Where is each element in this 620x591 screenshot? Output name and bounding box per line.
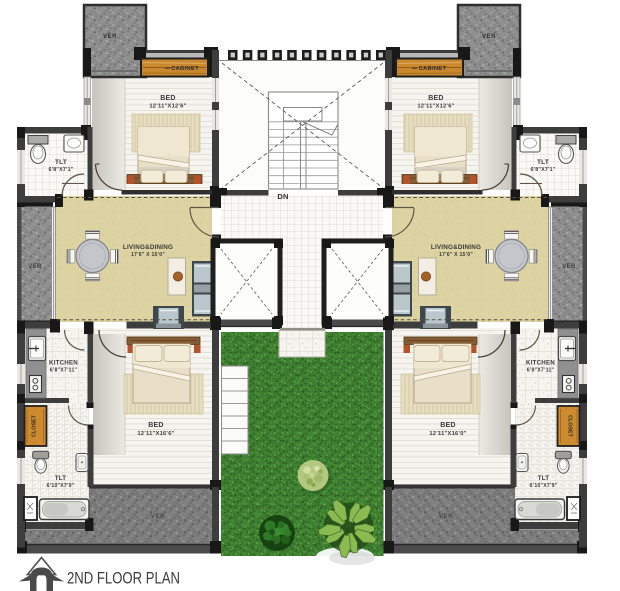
svg-text:BED: BED [440,422,455,429]
svg-text:CABINET: CABINET [171,66,199,72]
svg-text:17’6" X 15’0": 17’6" X 15’0" [131,252,165,258]
svg-text:TLT: TLT [537,159,549,166]
svg-text:CLOSET: CLOSET [32,414,38,437]
svg-text:TLT: TLT [538,475,549,482]
svg-text:TLT: TLT [55,475,66,482]
svg-text:KITCHEN: KITCHEN [49,360,78,367]
svg-text:6’8"X7’1": 6’8"X7’1" [48,167,73,173]
svg-text:6’10"X7’9": 6’10"X7’9" [47,483,75,489]
svg-text:VER: VER [482,34,496,40]
svg-text:VER: VER [151,513,165,520]
svg-text:6’10"X7’9": 6’10"X7’9" [530,483,558,489]
svg-text:BED: BED [148,422,163,429]
svg-text:6’8"X7’11": 6’8"X7’11" [527,368,555,374]
svg-text:CABINET: CABINET [419,66,447,72]
svg-text:12’11"X16’0": 12’11"X16’0" [429,431,466,437]
svg-text:6’8"X7’1": 6’8"X7’1" [530,167,555,173]
svg-text:17’6" X 15’0": 17’6" X 15’0" [439,252,473,258]
svg-text:VER: VER [562,264,576,270]
svg-text:BED: BED [160,95,175,102]
svg-text:LIVING&DINING: LIVING&DINING [431,244,481,251]
svg-text:TLT: TLT [55,159,67,166]
svg-text:VER: VER [103,34,117,40]
svg-text:12’11"X12’6": 12’11"X12’6" [417,104,454,110]
svg-text:BED: BED [428,95,443,102]
svg-text:KITCHEN: KITCHEN [526,360,555,367]
svg-text:2ND FLOOR PLAN: 2ND FLOOR PLAN [67,570,180,588]
svg-text:6’8"X7’11": 6’8"X7’11" [50,368,78,374]
svg-text:VER: VER [28,264,42,270]
svg-text:DN: DN [277,192,288,201]
svg-text:12’11"X16’6": 12’11"X16’6" [137,431,174,437]
svg-text:12’11"X12’6": 12’11"X12’6" [149,104,186,110]
svg-text:VER: VER [439,513,453,520]
svg-text:LIVING&DINING: LIVING&DINING [123,244,173,251]
svg-text:CLOSET: CLOSET [567,415,573,438]
